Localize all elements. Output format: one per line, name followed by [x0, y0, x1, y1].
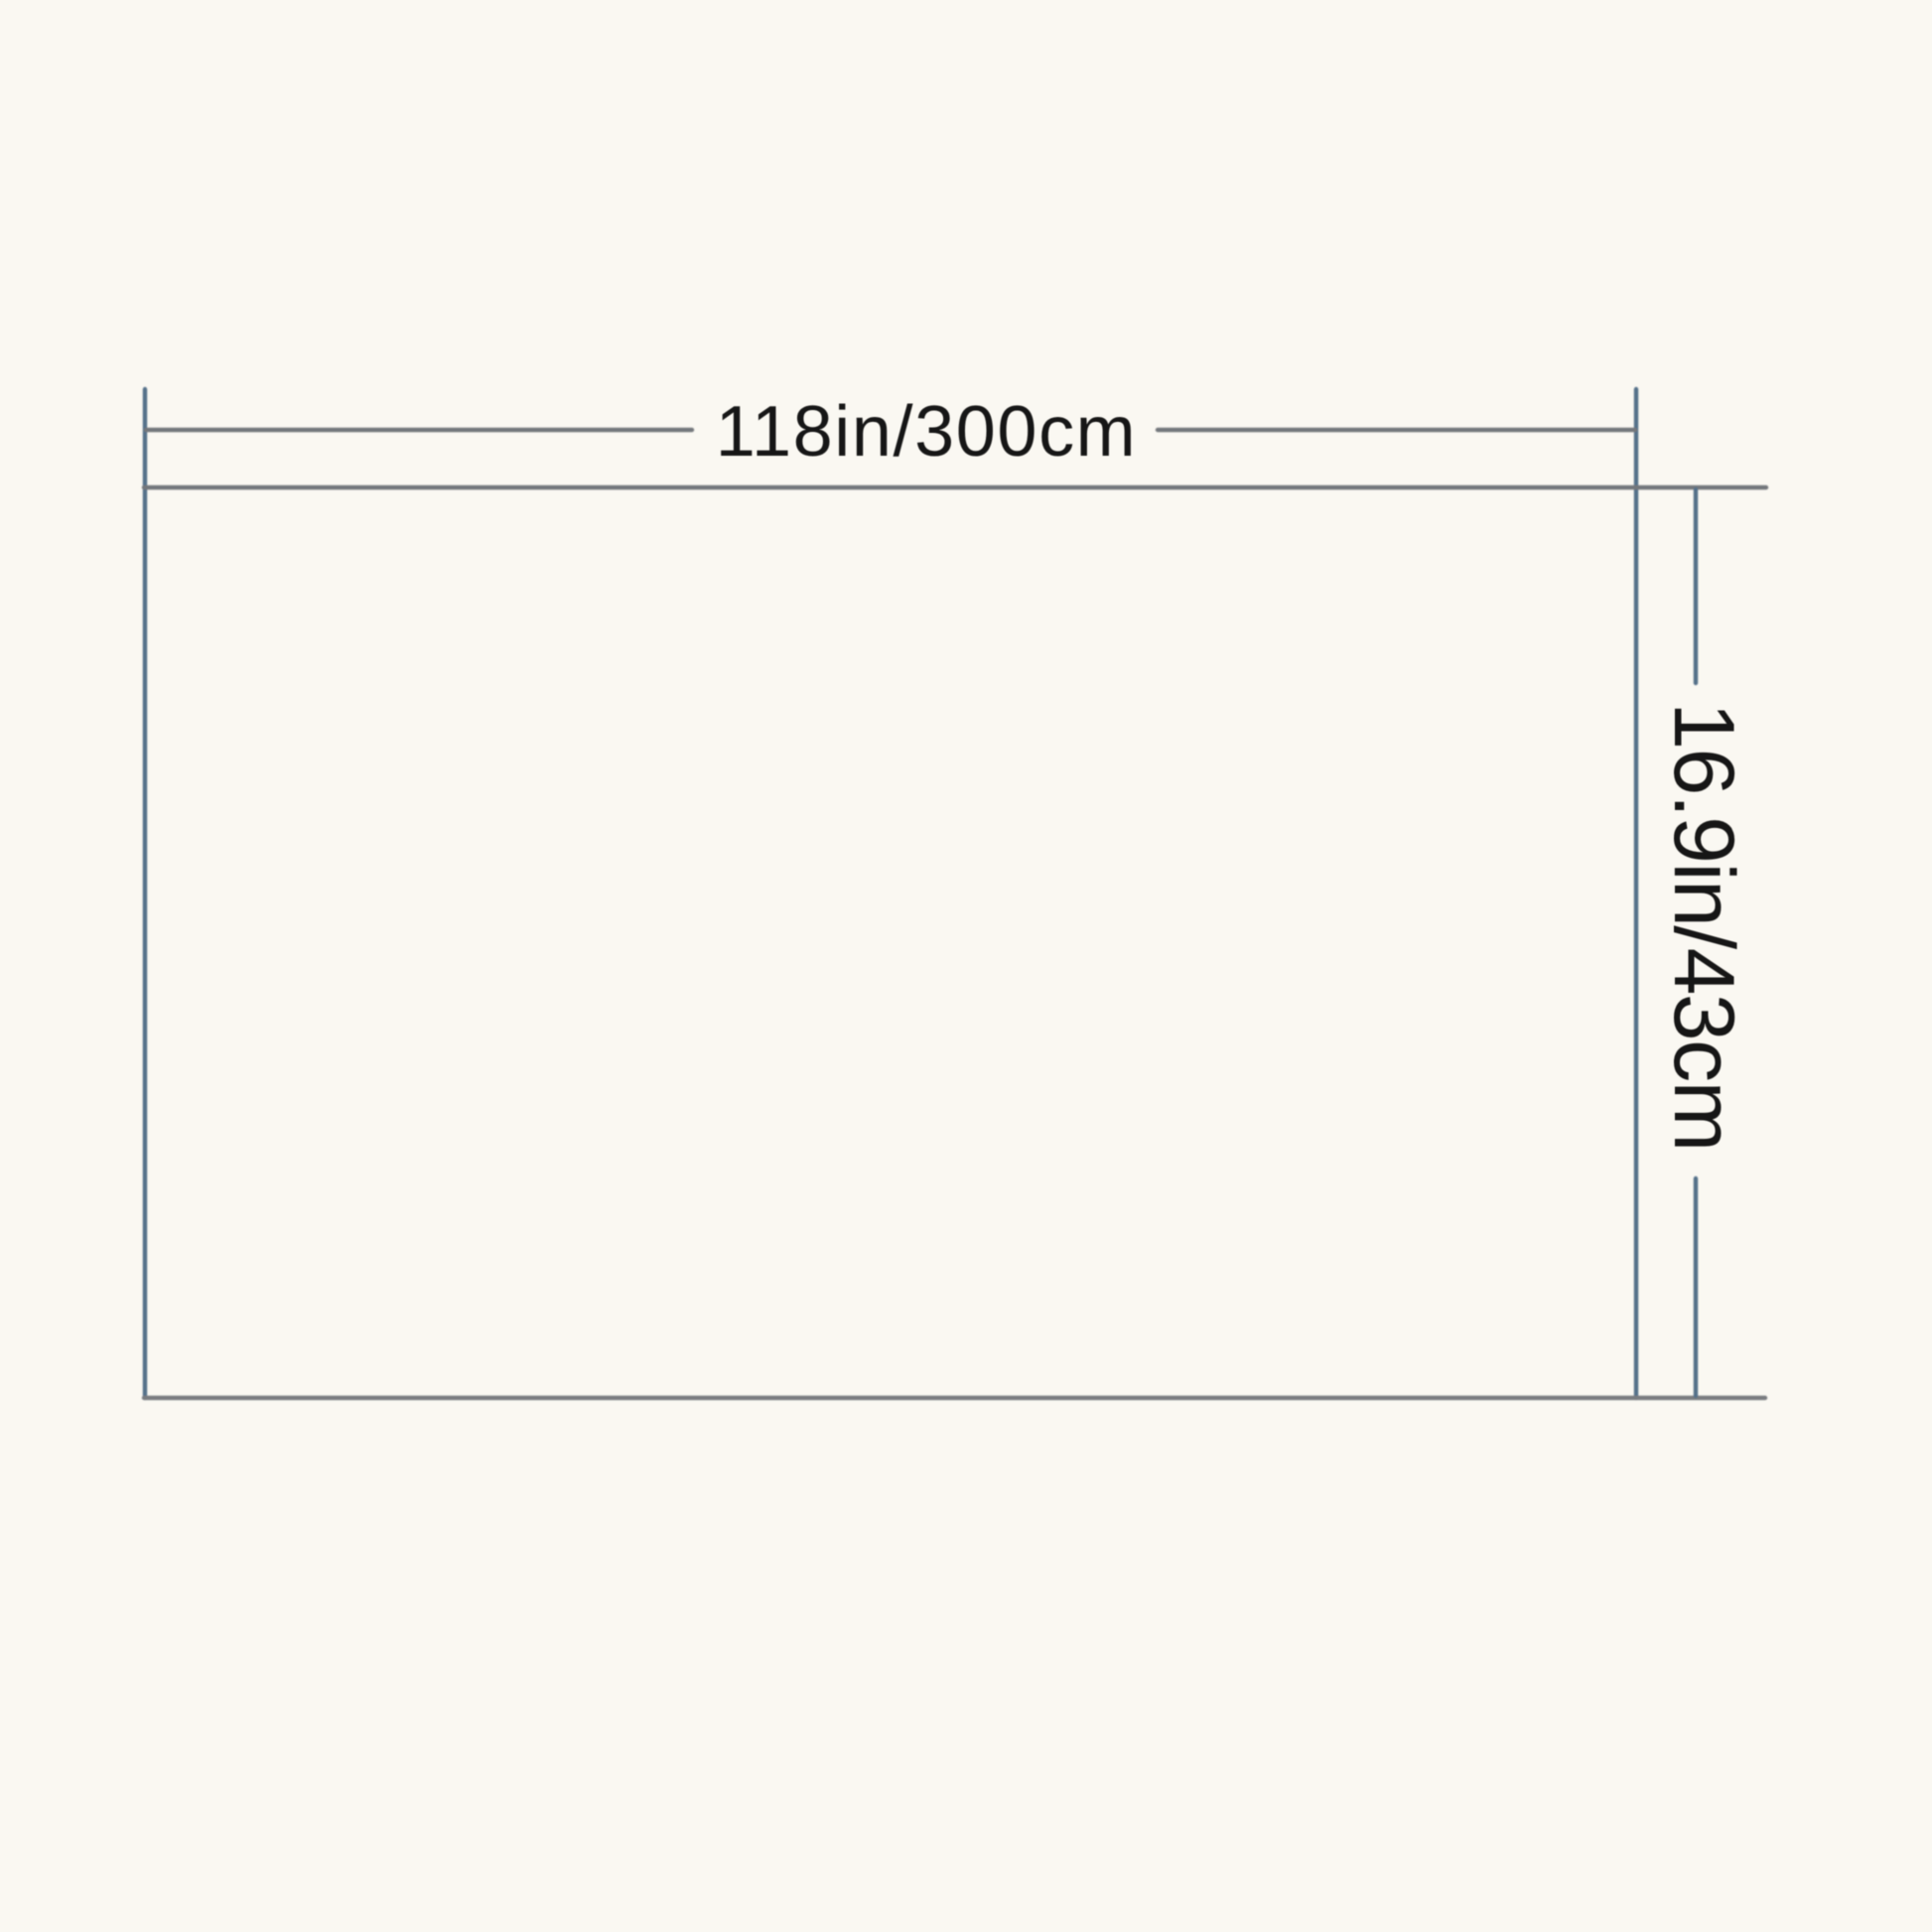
svg-text:16.9in/43cm: 16.9in/43cm [1656, 702, 1751, 1150]
svg-text:118in/300cm: 118in/300cm [716, 392, 1138, 472]
